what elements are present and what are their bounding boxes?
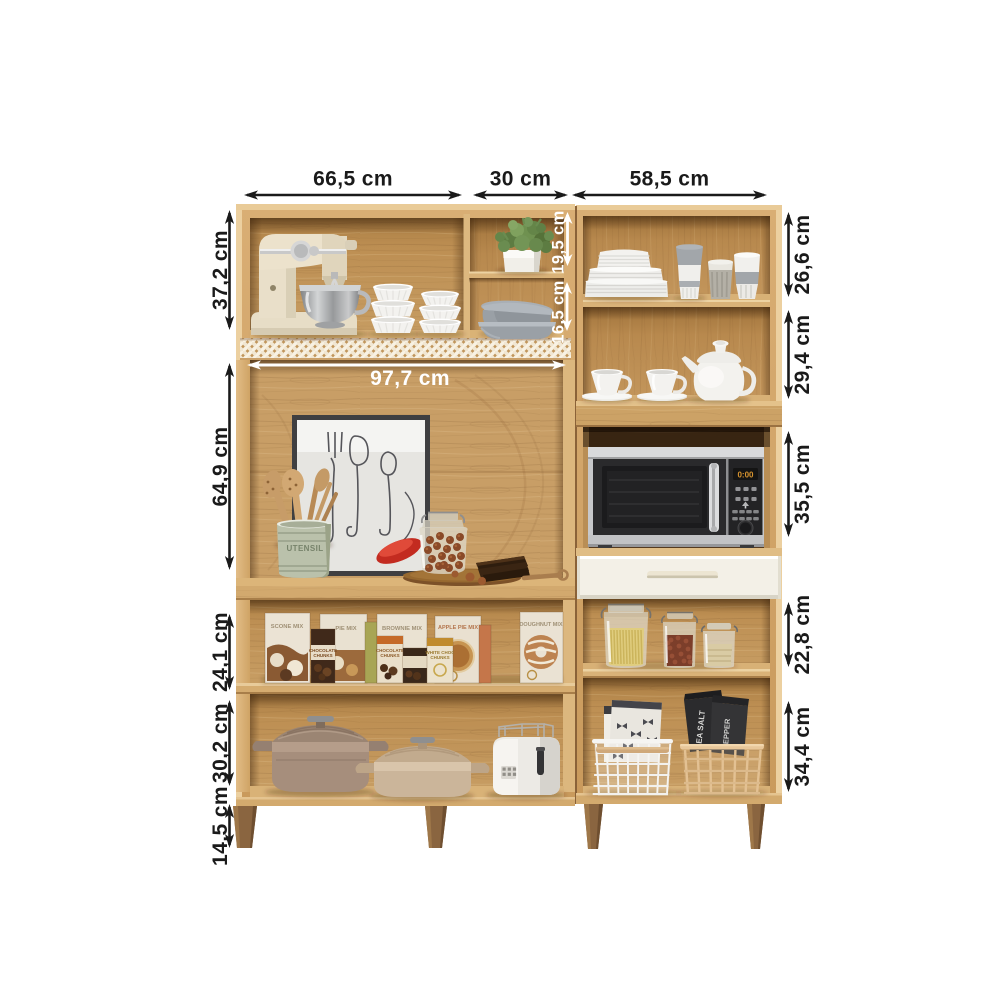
- svg-text:APPLE PIE MIX: APPLE PIE MIX: [438, 625, 478, 631]
- svg-text:0:00: 0:00: [737, 471, 754, 480]
- svg-text:DOUGHNUT MIX: DOUGHNUT MIX: [519, 622, 562, 628]
- svg-text:19,5 cm: 19,5 cm: [550, 210, 568, 273]
- svg-text:97,7 cm: 97,7 cm: [370, 367, 450, 390]
- svg-text:30,2 cm: 30,2 cm: [209, 703, 232, 783]
- svg-text:BROWNIE MIX: BROWNIE MIX: [382, 626, 422, 632]
- svg-text:PIE MIX: PIE MIX: [335, 626, 356, 632]
- svg-text:35,5 cm: 35,5 cm: [791, 444, 814, 524]
- svg-text:14,5 cm: 14,5 cm: [209, 786, 232, 866]
- svg-text:SCONE MIX: SCONE MIX: [271, 624, 304, 630]
- svg-text:37,2 cm: 37,2 cm: [209, 230, 232, 310]
- svg-text:UTENSIL: UTENSIL: [286, 544, 323, 553]
- svg-text:CHUNKS: CHUNKS: [380, 653, 399, 658]
- svg-text:66,5 cm: 66,5 cm: [313, 168, 393, 191]
- svg-text:16,5 cm: 16,5 cm: [550, 280, 568, 343]
- svg-text:34,4 cm: 34,4 cm: [791, 707, 814, 787]
- svg-text:26,6 cm: 26,6 cm: [791, 215, 814, 295]
- svg-text:58,5 cm: 58,5 cm: [630, 168, 710, 191]
- svg-text:24,1 cm: 24,1 cm: [209, 612, 232, 692]
- svg-text:30 cm: 30 cm: [490, 168, 552, 191]
- svg-text:29,4 cm: 29,4 cm: [791, 315, 814, 395]
- svg-text:22,8 cm: 22,8 cm: [791, 595, 814, 675]
- svg-text:64,9 cm: 64,9 cm: [209, 427, 232, 507]
- svg-text:CHUNKS: CHUNKS: [430, 655, 449, 660]
- svg-text:CHUNKS: CHUNKS: [313, 653, 332, 658]
